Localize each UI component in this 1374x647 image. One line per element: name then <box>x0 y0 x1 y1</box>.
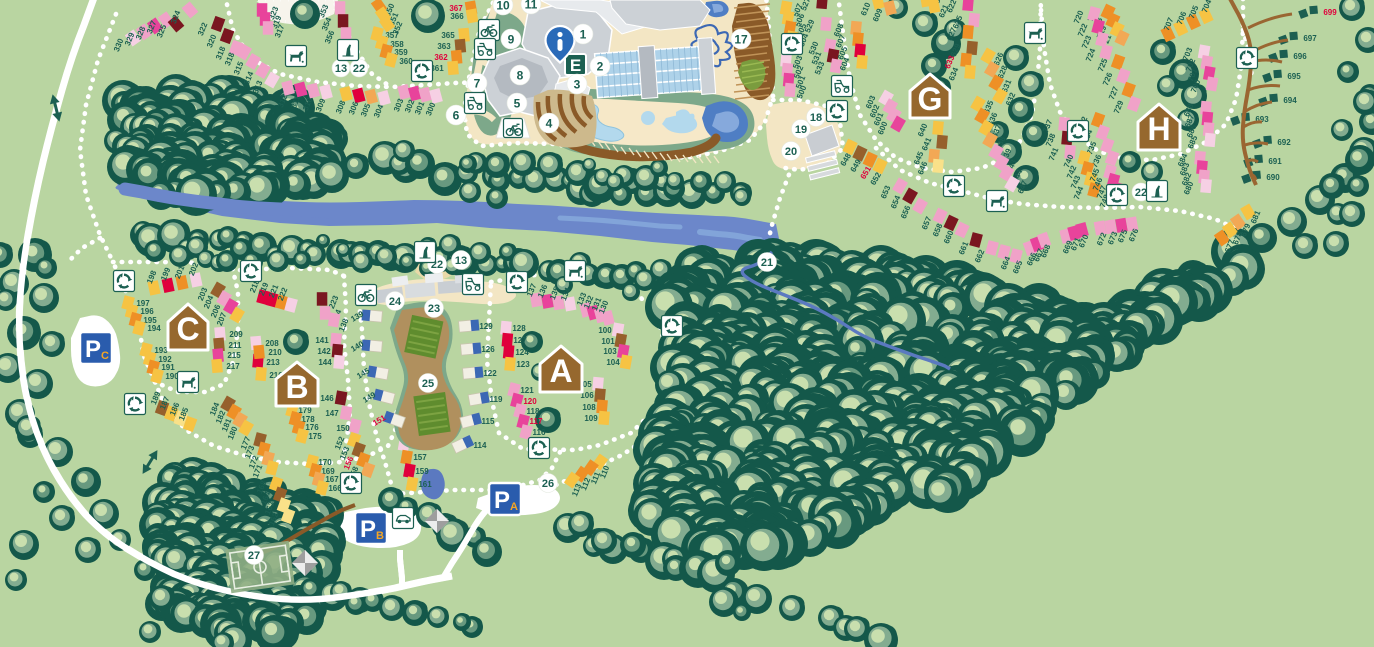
svg-text:215: 215 <box>227 351 241 360</box>
svg-text:22: 22 <box>1135 187 1147 199</box>
svg-text:690: 690 <box>1266 173 1280 182</box>
svg-text:114: 114 <box>474 441 487 450</box>
svg-text:120: 120 <box>523 397 537 406</box>
svg-text:119: 119 <box>490 395 503 404</box>
svg-text:104: 104 <box>606 358 620 367</box>
svg-text:100: 100 <box>598 326 612 335</box>
svg-text:C: C <box>176 311 199 347</box>
svg-text:P: P <box>85 336 101 363</box>
svg-text:124: 124 <box>515 348 529 357</box>
svg-text:117: 117 <box>530 417 543 426</box>
svg-text:6: 6 <box>453 108 460 122</box>
svg-text:A: A <box>510 501 518 513</box>
svg-text:B: B <box>285 369 308 405</box>
svg-text:4: 4 <box>546 116 553 130</box>
svg-text:26: 26 <box>542 478 554 490</box>
svg-text:128: 128 <box>512 324 526 333</box>
svg-text:159: 159 <box>415 467 429 476</box>
svg-text:141: 141 <box>315 336 329 345</box>
svg-text:161: 161 <box>418 480 432 489</box>
svg-text:H: H <box>1147 111 1170 147</box>
svg-text:208: 208 <box>265 339 279 348</box>
svg-text:196: 196 <box>140 307 154 316</box>
svg-text:122: 122 <box>483 369 497 378</box>
svg-text:18: 18 <box>810 112 822 124</box>
svg-text:1: 1 <box>580 27 587 41</box>
svg-text:363: 363 <box>437 42 451 51</box>
svg-text:366: 366 <box>450 12 464 21</box>
svg-text:697: 697 <box>1303 34 1317 43</box>
svg-text:691: 691 <box>1268 157 1282 166</box>
svg-text:362: 362 <box>434 53 448 62</box>
svg-text:E: E <box>570 56 581 75</box>
svg-text:9: 9 <box>508 32 515 46</box>
svg-text:23: 23 <box>428 303 440 315</box>
svg-text:210: 210 <box>268 348 282 357</box>
svg-text:17: 17 <box>734 32 748 46</box>
svg-text:13: 13 <box>335 63 347 75</box>
svg-text:P: P <box>494 487 510 514</box>
svg-text:P: P <box>360 516 376 543</box>
svg-text:142: 142 <box>317 347 331 356</box>
svg-text:157: 157 <box>413 453 427 462</box>
svg-text:C: C <box>101 350 109 362</box>
svg-text:209: 209 <box>229 330 243 339</box>
svg-text:24: 24 <box>389 296 402 308</box>
svg-text:191: 191 <box>161 363 175 372</box>
svg-text:116: 116 <box>533 428 546 437</box>
svg-text:101: 101 <box>601 337 615 346</box>
svg-text:699: 699 <box>1323 8 1337 17</box>
svg-text:213: 213 <box>266 358 280 367</box>
svg-text:20: 20 <box>785 146 797 158</box>
svg-text:8: 8 <box>517 68 524 82</box>
svg-text:103: 103 <box>603 347 617 356</box>
svg-text:108: 108 <box>582 403 596 412</box>
svg-text:22: 22 <box>353 63 365 75</box>
svg-text:147: 147 <box>325 409 339 418</box>
svg-text:127: 127 <box>513 336 527 345</box>
svg-text:A: A <box>549 353 572 389</box>
svg-text:19: 19 <box>795 124 807 136</box>
svg-text:365: 365 <box>441 31 455 40</box>
svg-text:175: 175 <box>308 432 322 441</box>
svg-text:144: 144 <box>318 358 332 367</box>
svg-text:2: 2 <box>597 59 604 73</box>
svg-text:115: 115 <box>482 417 495 426</box>
svg-text:694: 694 <box>1283 96 1297 105</box>
svg-text:696: 696 <box>1293 52 1307 61</box>
svg-text:194: 194 <box>147 324 161 333</box>
svg-text:692: 692 <box>1277 138 1291 147</box>
svg-text:109: 109 <box>584 414 598 423</box>
svg-text:13: 13 <box>455 255 467 267</box>
svg-text:695: 695 <box>1287 72 1301 81</box>
svg-text:146: 146 <box>320 394 334 403</box>
svg-text:150: 150 <box>336 424 350 433</box>
svg-text:3: 3 <box>574 77 581 91</box>
svg-text:118: 118 <box>527 407 540 416</box>
svg-text:217: 217 <box>226 362 240 371</box>
svg-text:126: 126 <box>481 345 495 354</box>
svg-text:5: 5 <box>514 96 521 110</box>
svg-text:7: 7 <box>474 76 481 90</box>
svg-text:21: 21 <box>761 257 773 269</box>
svg-text:25: 25 <box>422 378 434 390</box>
svg-text:211: 211 <box>229 341 242 350</box>
svg-text:27: 27 <box>248 550 260 562</box>
svg-text:10: 10 <box>496 0 510 12</box>
svg-text:123: 123 <box>516 360 530 369</box>
svg-text:G: G <box>918 81 943 117</box>
svg-text:129: 129 <box>479 322 493 331</box>
svg-text:11: 11 <box>525 0 538 11</box>
svg-text:B: B <box>376 530 384 542</box>
svg-text:121: 121 <box>520 386 534 395</box>
